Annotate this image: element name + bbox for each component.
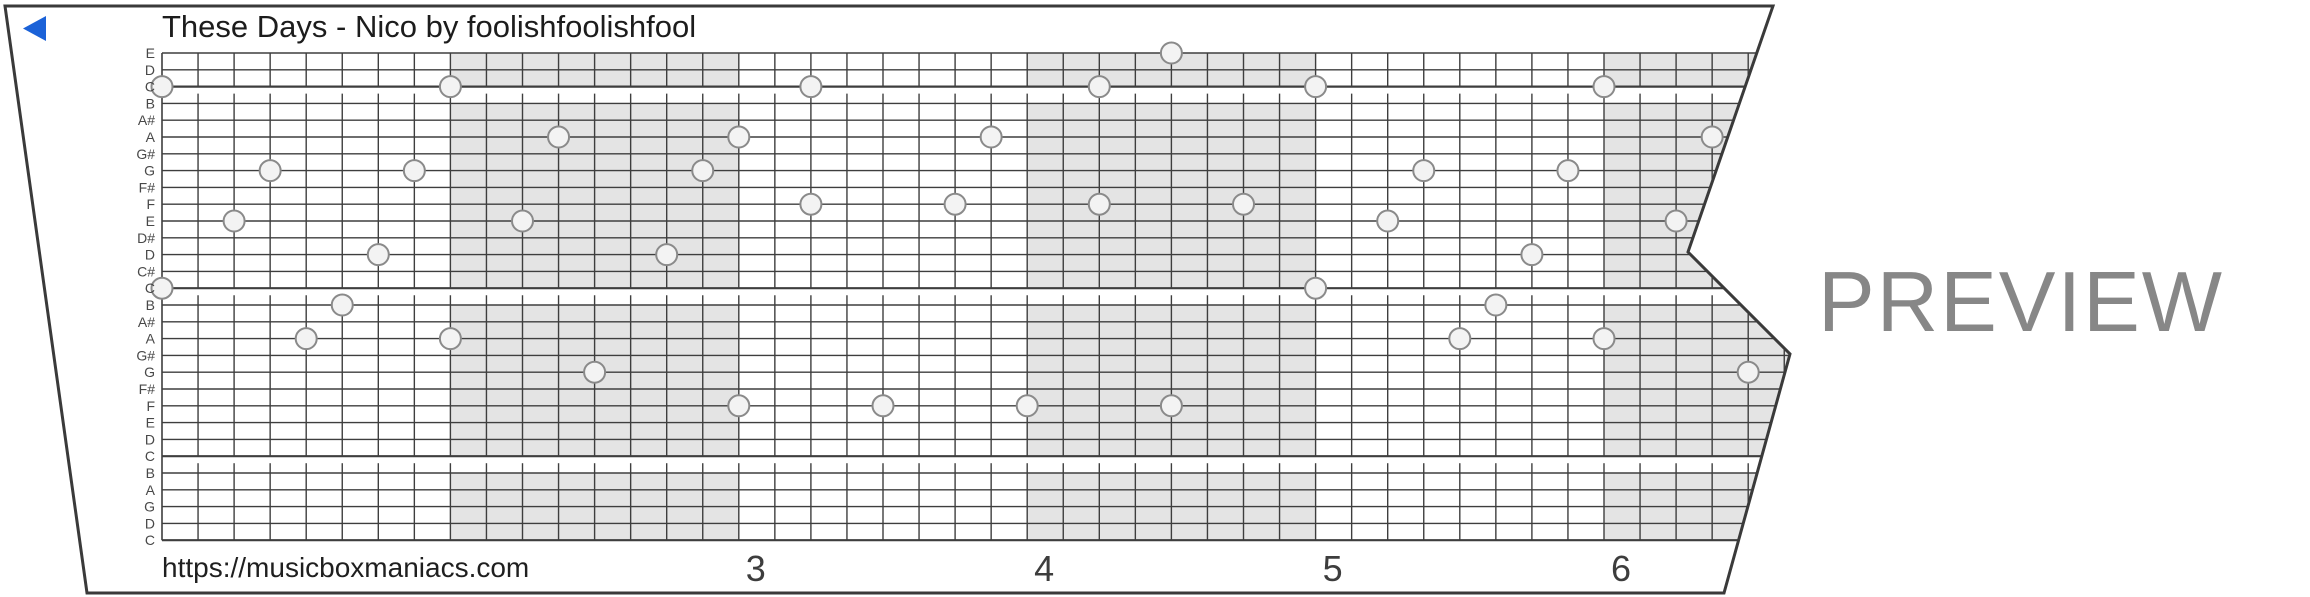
note-dot — [1413, 160, 1434, 181]
note-row-label: B — [146, 95, 155, 111]
measure-number: 6 — [1611, 548, 1631, 589]
note-dot — [404, 160, 425, 181]
note-dot — [1702, 127, 1723, 148]
note-row-label: C — [145, 448, 155, 464]
note-row-label: G# — [136, 347, 155, 363]
note-row-label: C# — [137, 263, 155, 279]
note-dot — [1557, 160, 1578, 181]
preview-watermark: PREVIEW — [1818, 260, 2224, 345]
note-dot — [873, 395, 894, 416]
note-row-label: G — [144, 364, 155, 380]
note-row-label: F — [146, 196, 155, 212]
note-dot — [548, 127, 569, 148]
note-dot — [296, 328, 317, 349]
note-row-label: C — [145, 532, 155, 548]
site-url: https://musicboxmaniacs.com — [162, 554, 529, 582]
note-row-label: G# — [136, 146, 155, 162]
note-dot — [1161, 43, 1182, 64]
note-dot — [1017, 395, 1038, 416]
measure-number: 5 — [1323, 548, 1343, 589]
note-row-label: F# — [139, 381, 156, 397]
note-row-label: A — [146, 331, 156, 347]
note-dot — [728, 127, 749, 148]
note-row-label: B — [146, 297, 155, 313]
note-dot — [945, 194, 966, 215]
note-dot — [1521, 244, 1542, 265]
note-dot — [584, 362, 605, 383]
note-dot — [1377, 211, 1398, 232]
note-row-label: D# — [137, 230, 155, 246]
measure-number: 3 — [746, 548, 766, 589]
note-row-label: B — [146, 465, 155, 481]
note-dot — [332, 295, 353, 316]
note-row-label: E — [146, 45, 155, 61]
note-row-label: C — [145, 79, 155, 95]
note-row-label: E — [146, 415, 155, 431]
note-dot — [1485, 295, 1506, 316]
note-row-label: D — [145, 62, 155, 78]
note-row-label: D — [145, 515, 155, 531]
strip-title: These Days - Nico by foolishfoolishfool — [162, 11, 696, 42]
note-dot — [981, 127, 1002, 148]
note-dot — [512, 211, 533, 232]
note-row-label: C — [145, 280, 155, 296]
note-row-label: G — [144, 499, 155, 515]
note-dot — [656, 244, 677, 265]
note-dot — [1594, 328, 1615, 349]
note-row-label: F — [146, 398, 155, 414]
music-box-preview-page: EDCBA#AG#GF#FED#DC#CBA#AG#GF#FEDCBAGDC34… — [0, 0, 2310, 597]
note-dot — [440, 328, 461, 349]
note-dot — [1089, 76, 1110, 97]
note-row-label: A — [146, 482, 156, 498]
measure-number: 4 — [1034, 548, 1054, 589]
note-row-label: A# — [138, 314, 155, 330]
note-dot — [1161, 395, 1182, 416]
note-row-label: E — [146, 213, 155, 229]
note-dot — [260, 160, 281, 181]
note-row-label: D — [145, 431, 155, 447]
note-dot — [1233, 194, 1254, 215]
note-row-label: F# — [139, 179, 156, 195]
note-dot — [1666, 211, 1687, 232]
note-dot — [1738, 362, 1759, 383]
octave-separator-stripe — [162, 457, 1900, 473]
note-row-label: A# — [138, 112, 155, 128]
note-dot — [1089, 194, 1110, 215]
note-dot — [224, 211, 245, 232]
note-dot — [440, 76, 461, 97]
note-row-label: A — [146, 129, 156, 145]
octave-separator-stripe — [162, 289, 1900, 305]
note-dot — [1305, 278, 1326, 299]
note-dot — [800, 76, 821, 97]
note-dot — [1594, 76, 1615, 97]
note-dot — [368, 244, 389, 265]
note-dot — [1449, 328, 1470, 349]
octave-separator-stripe — [162, 88, 1900, 104]
note-row-label: G — [144, 163, 155, 179]
note-row-label: D — [145, 247, 155, 263]
note-dot — [692, 160, 713, 181]
note-dot — [800, 194, 821, 215]
note-dot — [1305, 76, 1326, 97]
note-dot — [728, 395, 749, 416]
